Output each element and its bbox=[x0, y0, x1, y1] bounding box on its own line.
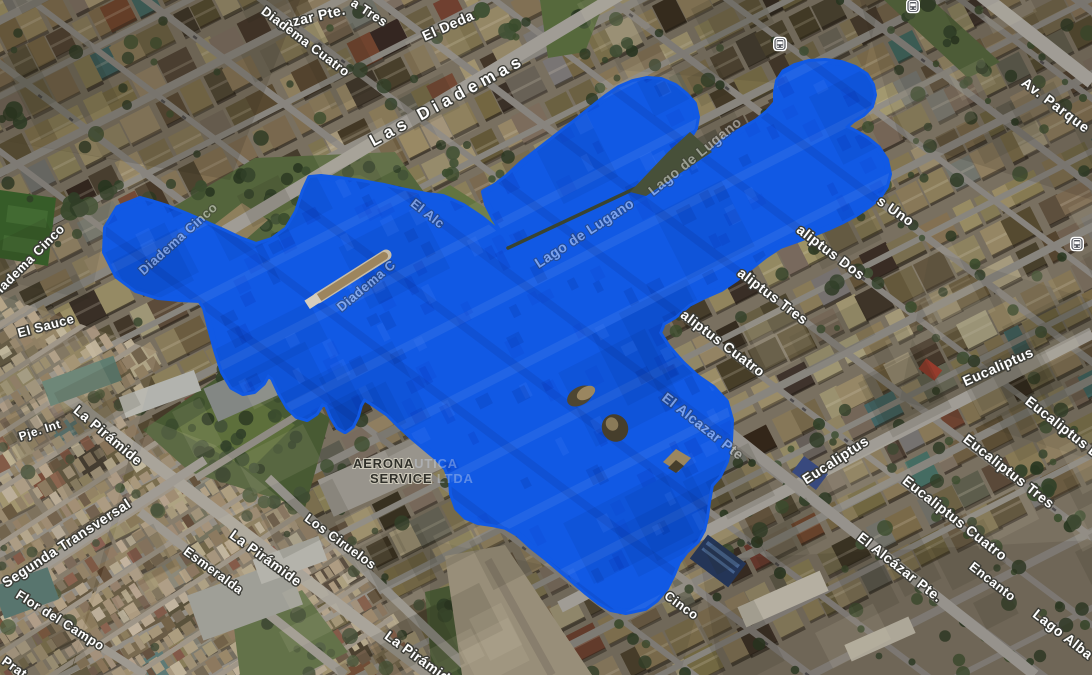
svg-text:AERONAUTICA: AERONAUTICA bbox=[353, 456, 458, 471]
svg-text:SERVICE LTDA: SERVICE LTDA bbox=[370, 471, 474, 486]
